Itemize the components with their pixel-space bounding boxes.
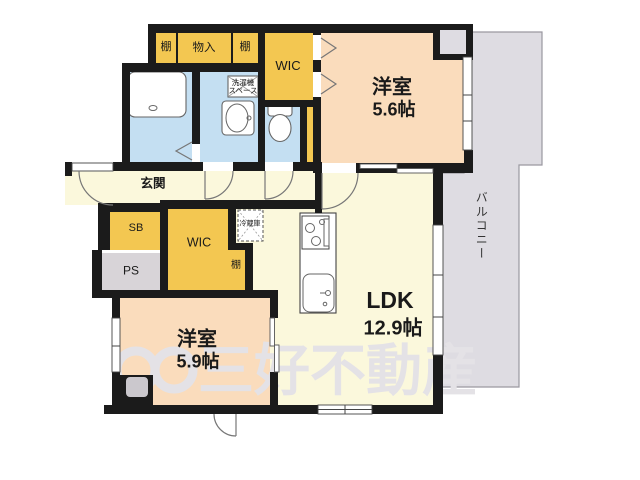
label-bedroom2-size: 5.9帖 [176,353,219,372]
label-shelf-side: 棚 [231,261,241,272]
washbasin [222,101,254,135]
bathtub [128,72,186,117]
exterior-door-arc [214,414,236,436]
label-shoe-box: SB [129,223,144,235]
label-closet-top: 物入 [193,42,216,54]
label-shelf-top-left: 棚 [161,42,172,54]
label-shelf-top-right: 棚 [240,42,251,54]
kitchen-counter [300,213,336,313]
label-balcony: バルコニー [475,191,488,261]
label-pipe-shaft: PS [123,265,139,278]
label-laundry-line2: スペース [228,87,257,95]
floorplan: 三好不動産 [0,0,640,480]
toilet-bowl [269,115,291,142]
label-bedroom2-name: 洋室 [177,330,217,351]
corner-void [440,30,466,54]
corner-pillar [126,377,148,397]
label-wic-top: WIC [275,59,300,73]
label-laundry-space: 洗濯機 スペース [228,79,257,95]
label-wic-lower: WIC [187,236,211,249]
label-bedroom1-size: 5.6帖 [372,101,415,120]
label-bedroom1-name: 洋室 [372,78,412,99]
label-refrigerator: 冷蔵庫 [240,220,261,227]
label-entrance: 玄関 [140,177,165,190]
label-ldk-size: 12.9帖 [364,319,423,340]
label-ldk-name: LDK [366,288,413,312]
floorplan-drawing: 三好不動産 [0,0,640,480]
